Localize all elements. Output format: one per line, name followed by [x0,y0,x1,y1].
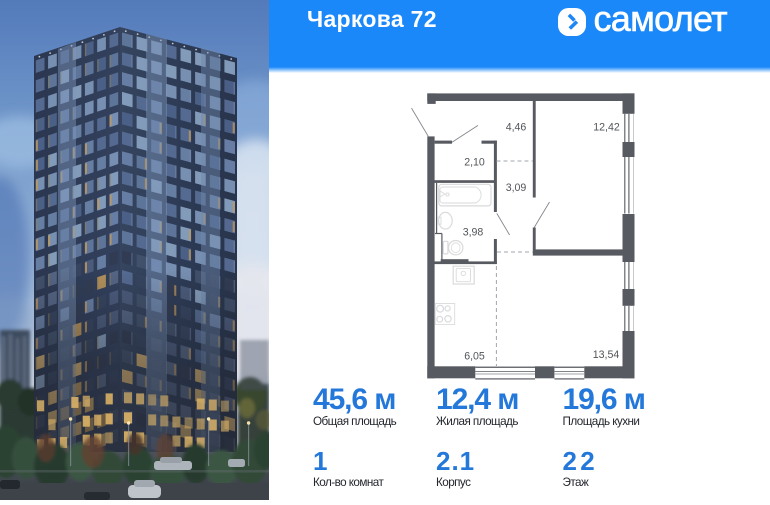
svg-text:6,05: 6,05 [464,351,485,363]
svg-text:3,09: 3,09 [506,182,527,194]
svg-text:12,42: 12,42 [593,122,620,134]
svg-text:3,98: 3,98 [463,227,484,239]
svg-text:13,54: 13,54 [593,349,620,361]
svg-text:2,10: 2,10 [464,157,485,169]
svg-text:4,46: 4,46 [506,122,527,134]
